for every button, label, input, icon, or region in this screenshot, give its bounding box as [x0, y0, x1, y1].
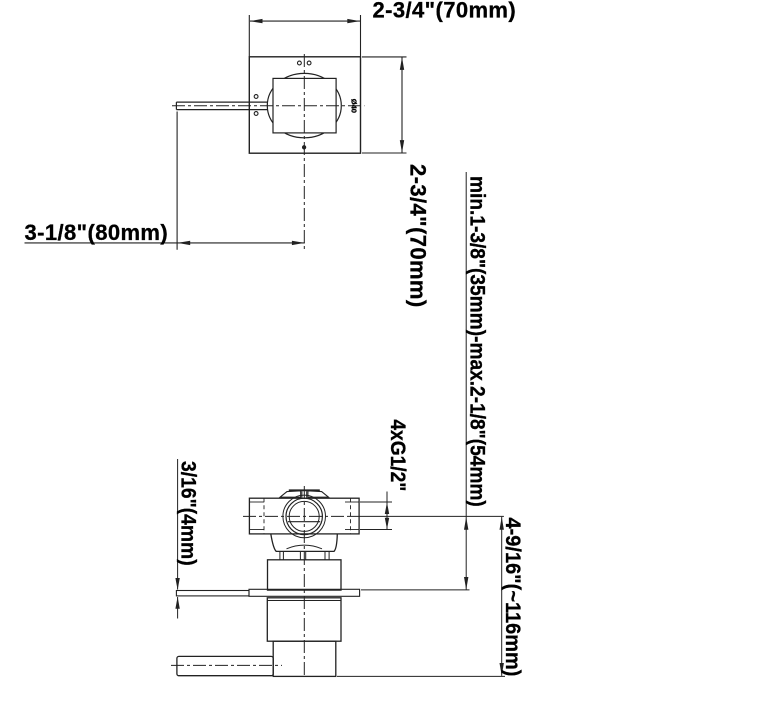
svg-text:2-3/4"(70mm): 2-3/4"(70mm) — [373, 0, 517, 23]
svg-text:2-3/4"(70mm): 2-3/4"(70mm) — [406, 164, 431, 308]
svg-text:Ø40: Ø40 — [350, 99, 359, 113]
svg-text:3-1/8"(80mm): 3-1/8"(80mm) — [25, 220, 169, 245]
svg-text:3/16"(4mm): 3/16"(4mm) — [176, 461, 199, 566]
svg-text:4-9/16"(~116mm): 4-9/16"(~116mm) — [501, 518, 525, 677]
svg-text:min.1-3/8"(35mm)-max.2-1/8"(54: min.1-3/8"(35mm)-max.2-1/8"(54mm) — [465, 176, 488, 507]
svg-text:4xG1/2": 4xG1/2" — [386, 419, 409, 491]
